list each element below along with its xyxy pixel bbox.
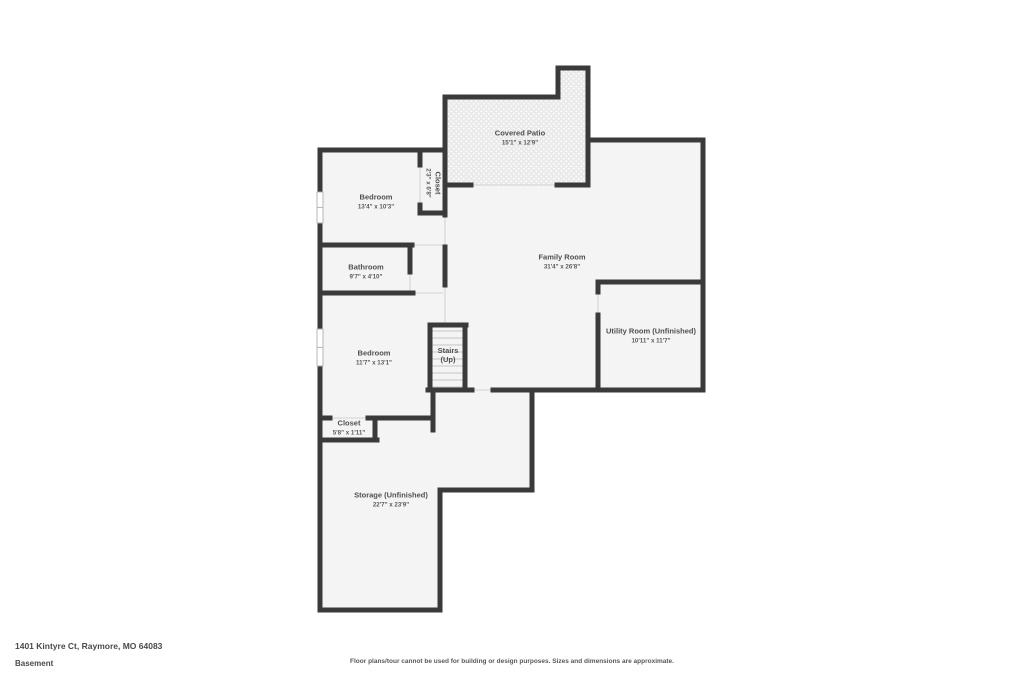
room-label-bedroom-top: Bedroom 13'4" x 10'3" bbox=[358, 193, 394, 210]
room-dimensions: 10'11" x 11'7" bbox=[606, 337, 696, 344]
room-name: Bathroom bbox=[348, 263, 383, 272]
room-dimensions: 9'7" x 4'10" bbox=[348, 273, 383, 280]
room-dimensions: 13'4" x 10'3" bbox=[358, 203, 394, 210]
room-label-utility-room: Utility Room (Unfinished) 10'11" x 11'7" bbox=[606, 327, 696, 344]
room-dimensions: 5'8" x 1'11" bbox=[333, 429, 366, 436]
room-name: Covered Patio bbox=[495, 129, 545, 138]
room-dimensions: 31'4" x 26'8" bbox=[538, 263, 585, 270]
room-label-storage: Storage (Unfinished) 22'7" x 23'9" bbox=[354, 491, 428, 508]
room-name: Bedroom bbox=[356, 349, 392, 358]
room-dimensions: 11'7" x 13'1" bbox=[356, 359, 392, 366]
room-name: Utility Room (Unfinished) bbox=[606, 327, 696, 336]
room-label-covered-patio: Covered Patio 15'1" x 12'9" bbox=[495, 129, 545, 146]
disclaimer-text: Floor plans/tour cannot be used for buil… bbox=[350, 658, 674, 665]
room-name: Closet bbox=[433, 168, 442, 197]
room-label-bedroom-lower: Bedroom 11'7" x 13'1" bbox=[356, 349, 392, 366]
room-name: Bedroom bbox=[358, 193, 394, 202]
patio-area bbox=[445, 68, 588, 185]
floor-plan-drawing bbox=[0, 0, 1024, 682]
room-dimensions: 2'3" x 6'8" bbox=[424, 168, 431, 197]
room-label-closet-top: Closet 2'3" x 6'8" bbox=[424, 168, 441, 197]
floor-level-label: Basement bbox=[15, 659, 53, 668]
room-name: Storage (Unfinished) bbox=[354, 491, 428, 500]
room-label-stairs: Stairs (Up) bbox=[438, 347, 459, 365]
room-dimensions: 22'7" x 23'9" bbox=[354, 501, 428, 508]
room-label-family-room: Family Room 31'4" x 26'8" bbox=[538, 253, 585, 270]
room-dimensions: 15'1" x 12'9" bbox=[495, 139, 545, 146]
room-name: Closet bbox=[333, 419, 366, 428]
room-label-closet-lower: Closet 5'8" x 1'11" bbox=[333, 419, 366, 436]
room-label-bathroom: Bathroom 9'7" x 4'10" bbox=[348, 263, 383, 280]
floor-plan-page: Covered Patio 15'1" x 12'9" Bedroom 13'4… bbox=[0, 0, 1024, 682]
room-name-line2: (Up) bbox=[438, 356, 459, 365]
room-name: Family Room bbox=[538, 253, 585, 262]
property-address: 1401 Kintyre Ct, Raymore, MO 64083 bbox=[15, 641, 162, 651]
